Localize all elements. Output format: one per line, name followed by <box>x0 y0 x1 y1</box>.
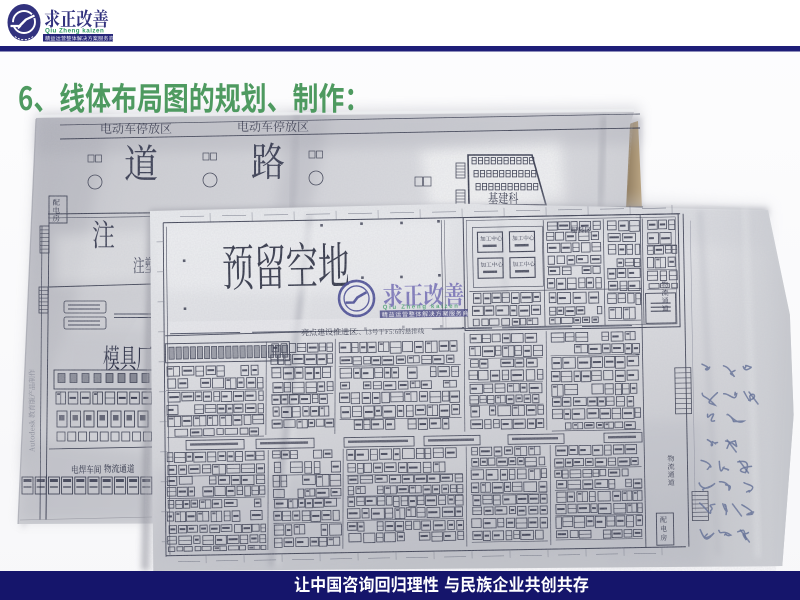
svg-text:Qiu Zheng kaizen: Qiu Zheng kaizen <box>45 27 104 34</box>
